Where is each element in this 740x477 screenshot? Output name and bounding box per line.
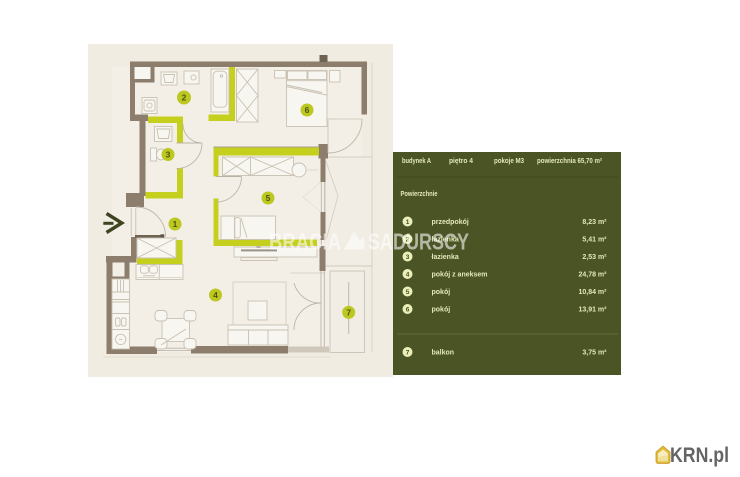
svg-text:24,78 m²: 24,78 m² [578,272,607,279]
svg-text:BRACIA: BRACIA [269,229,341,255]
svg-text:piętro 4: piętro 4 [449,158,473,165]
svg-text:3,75 m²: 3,75 m² [582,350,607,357]
svg-text:5: 5 [406,289,410,296]
svg-text:przedpokój: przedpokój [432,219,469,226]
svg-text:pokój: pokój [432,289,451,296]
svg-text:1: 1 [173,219,178,229]
svg-text:pokój: pokój [432,307,451,314]
svg-text:4: 4 [406,272,410,279]
svg-text:13,91 m²: 13,91 m² [578,307,607,314]
svg-text:8,23 m²: 8,23 m² [582,219,607,226]
svg-text:Powierzchnie: Powierzchnie [401,191,438,198]
svg-text:2: 2 [182,93,187,103]
svg-text:5: 5 [266,193,271,203]
svg-text:powierzchnia 65,70 m²: powierzchnia 65,70 m² [537,158,603,165]
svg-text:3: 3 [166,150,171,160]
svg-text:pokój z aneksem: pokój z aneksem [432,272,488,279]
svg-text:10,84 m²: 10,84 m² [578,289,607,296]
svg-text:6: 6 [305,105,310,115]
svg-text:łazienka: łazienka [432,254,459,261]
svg-text:SADURSCY: SADURSCY [368,229,469,255]
svg-text:KRN.pl: KRN.pl [670,443,729,467]
svg-text:balkon: balkon [432,350,455,357]
svg-text:budynek A: budynek A [402,158,431,165]
svg-text:5,41 m²: 5,41 m² [582,237,607,244]
svg-text:2,53 m²: 2,53 m² [582,254,607,261]
svg-text:6: 6 [406,307,410,314]
svg-text:7: 7 [346,307,351,317]
svg-text:4: 4 [213,290,218,300]
svg-text:1: 1 [406,219,410,226]
svg-text:3: 3 [406,254,410,261]
svg-text:7: 7 [406,350,410,357]
svg-text:pokoje M3: pokoje M3 [494,158,524,165]
